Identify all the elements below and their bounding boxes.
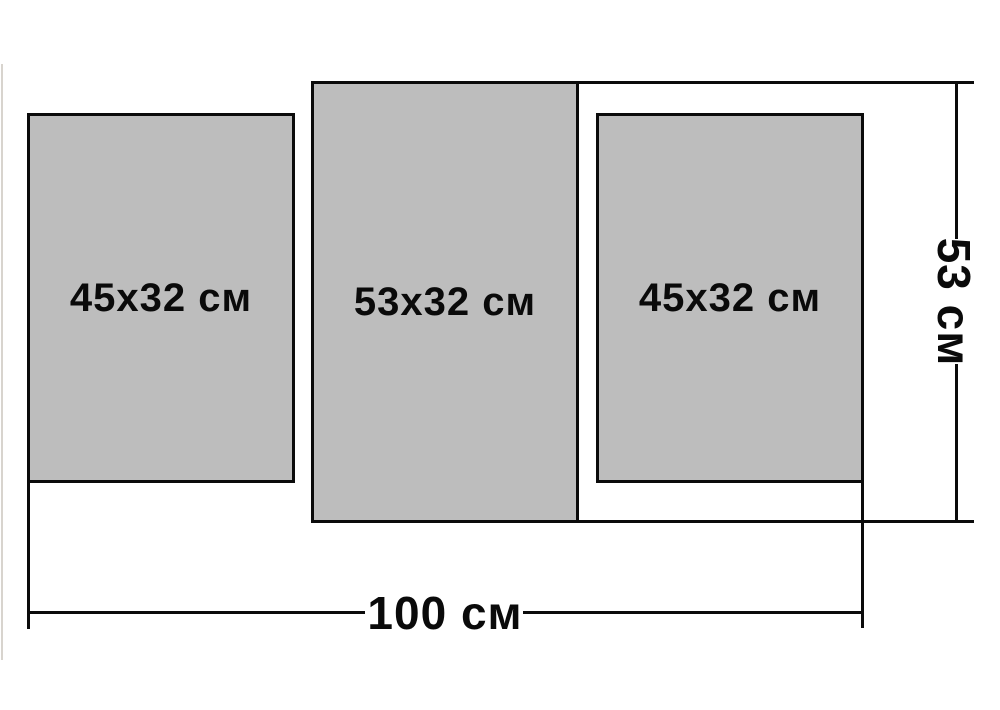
height-extension-line-top xyxy=(577,81,974,84)
width-extension-line-right xyxy=(861,483,864,628)
panel-middle-size-label: 53x32 см xyxy=(354,280,536,325)
height-dimension-label: 53 см xyxy=(927,238,981,367)
height-extension-line-bottom xyxy=(577,520,974,523)
width-dimension-line-right xyxy=(523,611,864,614)
panel-left-size-label: 45x32 см xyxy=(70,276,252,321)
width-dimension-label: 100 см xyxy=(355,587,535,639)
panel-middle: 53x32 см xyxy=(311,81,579,523)
width-dimension-line-left xyxy=(27,611,365,614)
height-dimension-line-upper xyxy=(955,84,958,239)
width-extension-line-left xyxy=(27,483,30,629)
height-dimension-line-lower xyxy=(955,364,958,520)
panel-right: 45x32 см xyxy=(596,113,864,483)
photo-edge-line xyxy=(1,64,3,660)
panel-left: 45x32 см xyxy=(27,113,295,483)
panel-right-size-label: 45x32 см xyxy=(639,276,821,321)
size-diagram: 45x32 см 53x32 см 45x32 см 53 см 100 см xyxy=(0,0,1000,710)
